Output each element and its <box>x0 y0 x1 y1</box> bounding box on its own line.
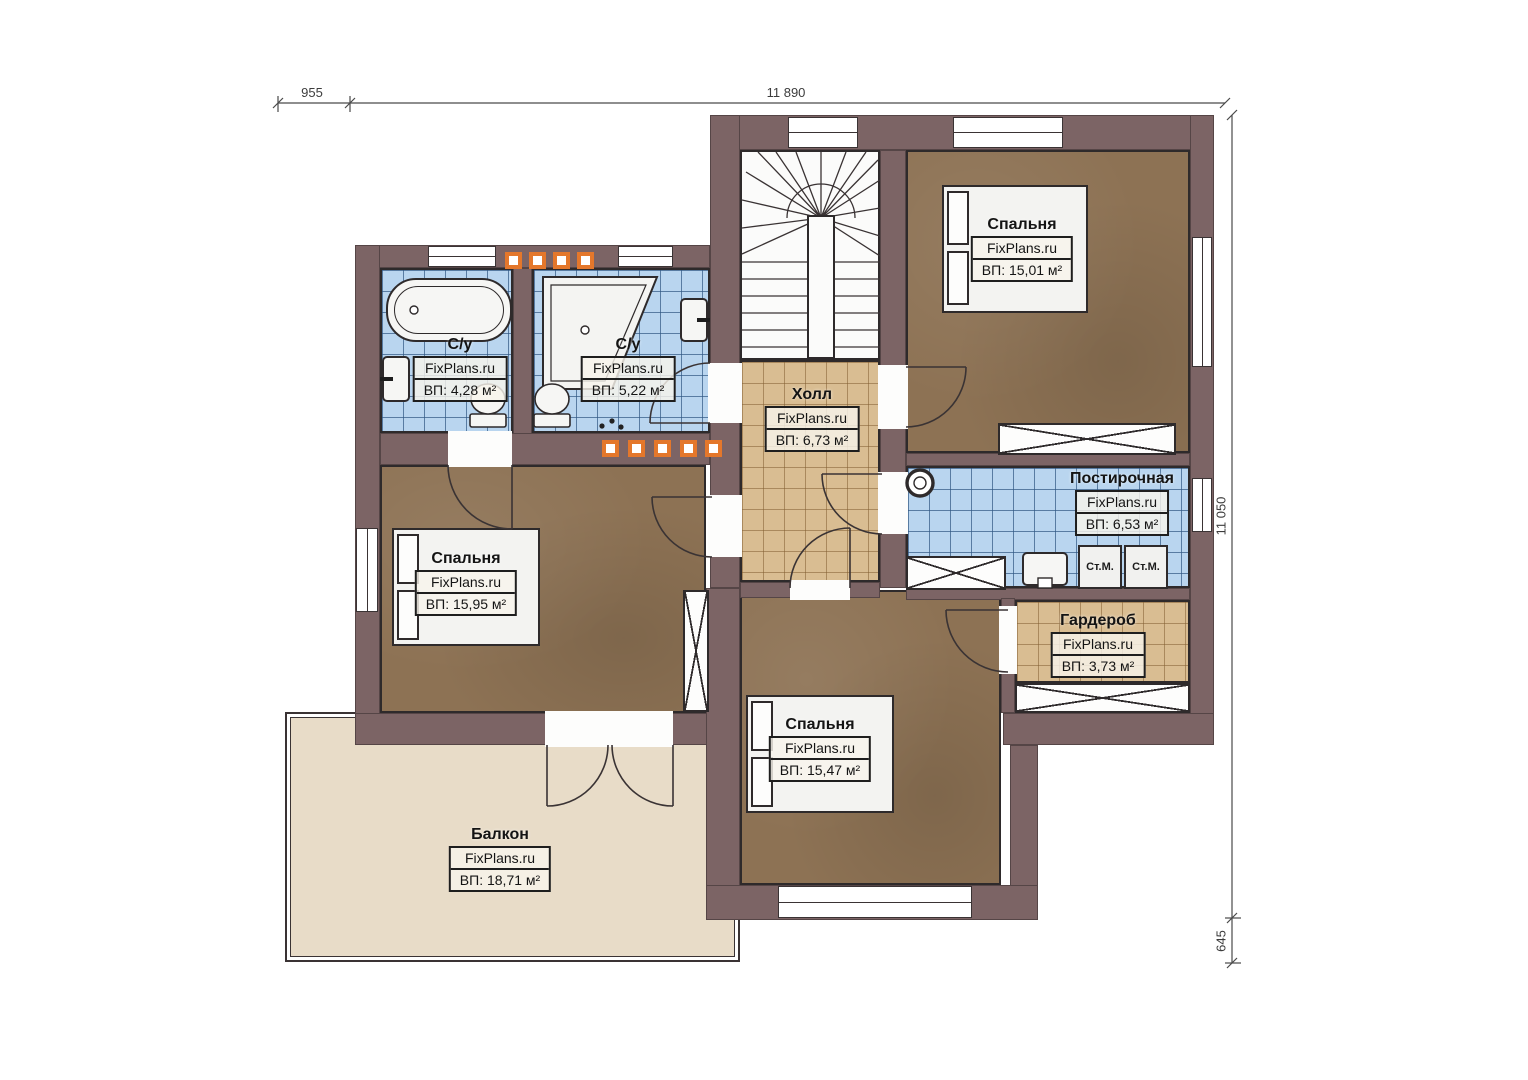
room-label-bathroom-1: С/у FixPlans.ru ВП: 4,28 м² <box>413 336 508 402</box>
window-bedroom-top-right <box>1192 237 1212 367</box>
room-label-laundry: Постирочная FixPlans.ru ВП: 6,53 м² <box>1070 470 1174 536</box>
room-label-bedroom-bottom: Спальня FixPlans.ru ВП: 15,47 м² <box>769 716 871 782</box>
room-title: С/у <box>581 336 676 354</box>
dimension-right-offset: 645 <box>1214 930 1229 952</box>
door-opening-hall-bedroom-bottom <box>790 580 850 600</box>
wall-wing-left <box>355 245 380 745</box>
watermark-text: FixPlans.ru <box>767 408 858 430</box>
room-area: ВП: 3,73 м² <box>1053 656 1144 676</box>
window-bedroom-bottom <box>778 886 972 918</box>
door-opening-balcony <box>545 711 673 747</box>
room-title: Балкон <box>449 826 551 844</box>
room-title: Холл <box>765 386 860 404</box>
watermark-text: FixPlans.ru <box>1077 492 1168 514</box>
room-label-bedroom-left: Спальня FixPlans.ru ВП: 15,95 м² <box>415 550 517 616</box>
room-label-wardrobe: Гардероб FixPlans.ru ВП: 3,73 м² <box>1051 612 1146 678</box>
room-label-bedroom-top: Спальня FixPlans.ru ВП: 15,01 м² <box>971 216 1073 282</box>
room-area: ВП: 4,28 м² <box>415 380 506 400</box>
room-area: ВП: 6,73 м² <box>767 430 858 450</box>
watermark-text: FixPlans.ru <box>415 358 506 380</box>
sink-bathroom-1 <box>382 356 410 402</box>
floor-plan: Ст.М. Ст.М. <box>0 0 1528 1080</box>
room-area: ВП: 5,22 м² <box>583 380 674 400</box>
vent-square-icon <box>505 252 522 269</box>
room-title: Спальня <box>769 716 871 734</box>
room-title: С/у <box>413 336 508 354</box>
bathtub-inner <box>394 286 504 334</box>
dimension-right-height: 11 050 <box>1214 497 1229 536</box>
pillow <box>947 191 969 245</box>
window-bathroom-2 <box>618 246 673 267</box>
dimension-top-offset: 955 <box>301 85 323 100</box>
window-bedroom-left <box>356 528 378 612</box>
washing-machine-left: Ст.М. <box>1078 545 1122 589</box>
watermark-text: FixPlans.ru <box>583 358 674 380</box>
bathtub <box>386 278 512 342</box>
room-title: Постирочная <box>1070 470 1174 488</box>
vent-square-icon <box>705 440 722 457</box>
room-title: Гардероб <box>1051 612 1146 630</box>
room-label-hall: Холл FixPlans.ru ВП: 6,73 м² <box>765 386 860 452</box>
wall-wing-right-bottom <box>1003 713 1214 745</box>
stairwell-floor <box>740 150 880 360</box>
room-area: ВП: 15,01 м² <box>973 260 1071 280</box>
cabinet-left-bedroom <box>683 590 709 712</box>
room-label-bathroom-2: С/у FixPlans.ru ВП: 5,22 м² <box>581 336 676 402</box>
door-opening-wardrobe <box>999 606 1017 674</box>
room-title: Спальня <box>971 216 1073 234</box>
washing-machine-label: Ст.М. <box>1086 561 1114 573</box>
door-opening-bath2-hall <box>708 363 742 423</box>
window-bathroom-1 <box>428 246 496 267</box>
wall-right-outer <box>1190 115 1214 745</box>
watermark-text: FixPlans.ru <box>973 238 1071 260</box>
watermark-text: FixPlans.ru <box>771 738 869 760</box>
window-bedroom-top <box>953 117 1063 148</box>
washing-machine-right: Ст.М. <box>1124 545 1168 589</box>
watermark-text: FixPlans.ru <box>417 572 515 594</box>
watermark-text: FixPlans.ru <box>451 848 549 870</box>
washing-machine-label: Ст.М. <box>1132 561 1160 573</box>
door-opening-bath1-bedroom <box>448 431 512 467</box>
vent-square-icon <box>628 440 645 457</box>
wardrobe-cabinet <box>1015 683 1190 713</box>
watermark-text: FixPlans.ru <box>1053 634 1144 656</box>
door-opening-hall-bedroom-left <box>708 495 742 557</box>
wall-bath-divider <box>513 268 532 435</box>
sink-bathroom-2 <box>680 298 708 342</box>
vent-square-icon <box>577 252 594 269</box>
vent-square-icon <box>654 440 671 457</box>
room-area: ВП: 15,95 м² <box>417 594 515 614</box>
wall-bedroom-bottom-left <box>706 588 740 920</box>
dimension-top-width: 11 890 <box>767 85 806 100</box>
room-title: Спальня <box>415 550 517 568</box>
wardrobe-cabinet-top-bedroom <box>998 423 1176 455</box>
sink-laundry <box>1022 552 1068 586</box>
room-area: ВП: 18,71 м² <box>451 870 549 890</box>
door-opening-hall-laundry <box>878 472 908 534</box>
pillow <box>947 251 969 305</box>
vent-square-icon <box>529 252 546 269</box>
cabinet-laundry <box>906 556 1006 590</box>
room-label-balcony: Балкон FixPlans.ru ВП: 18,71 м² <box>449 826 551 892</box>
room-area: ВП: 15,47 м² <box>771 760 869 780</box>
room-area: ВП: 6,53 м² <box>1077 514 1168 534</box>
window-stairwell <box>788 117 858 148</box>
vent-square-icon <box>680 440 697 457</box>
vent-square-icon <box>602 440 619 457</box>
door-opening-hall-bedroom-top <box>878 365 908 429</box>
window-laundry <box>1192 478 1212 532</box>
vent-square-icon <box>553 252 570 269</box>
